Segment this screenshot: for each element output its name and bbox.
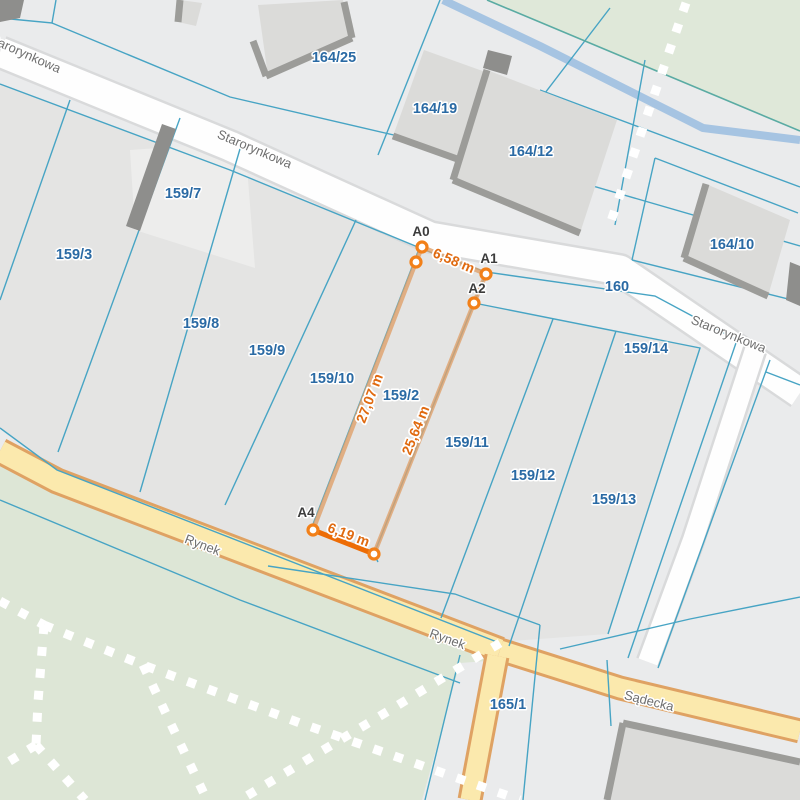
parcel-label-159-2: 159/2 [383,388,419,404]
parcel-label-164-12: 164/12 [509,144,553,160]
measure-vertex-A4[interactable] [308,525,318,535]
measure-vertex-label-A4: A4 [297,505,315,520]
measure-vertex-label-A0: A0 [412,224,429,239]
building-shadow [178,0,180,22]
cadastral-map[interactable]: StarorynkowaStarorynkowaStarorynkowaRyne… [0,0,800,800]
parcel-label-159-11: 159/11 [445,435,489,451]
parcel-label-164-10: 164/10 [710,237,754,253]
measure-vertex-A5[interactable] [411,257,421,267]
parcel-label-159-7: 159/7 [165,186,201,202]
measure-vertex-A1[interactable] [481,269,491,279]
measure-vertex-A3[interactable] [369,549,379,559]
measure-vertex-label-A2: A2 [468,281,485,296]
measure-vertex-A0[interactable] [417,242,427,252]
parcel-label-160: 160 [605,279,629,295]
parcel-label-165-1: 165/1 [490,697,526,713]
parcel-label-159-9: 159/9 [249,343,285,359]
parcel-label-159-8: 159/8 [183,316,219,332]
parcel-label-159-12: 159/12 [511,468,555,484]
map-canvas[interactable]: StarorynkowaStarorynkowaStarorynkowaRyne… [0,0,800,800]
measure-vertex-label-A1: A1 [480,251,498,266]
parcel-label-159-10: 159/10 [310,371,354,387]
parcel-label-159-14: 159/14 [624,341,668,357]
parcel-label-164-19: 164/19 [413,101,457,117]
parcel-label-159-3: 159/3 [56,247,92,263]
parcel-label-164-25: 164/25 [312,50,356,66]
parcel-label-159-13: 159/13 [592,492,636,508]
measure-vertex-A2[interactable] [469,298,479,308]
